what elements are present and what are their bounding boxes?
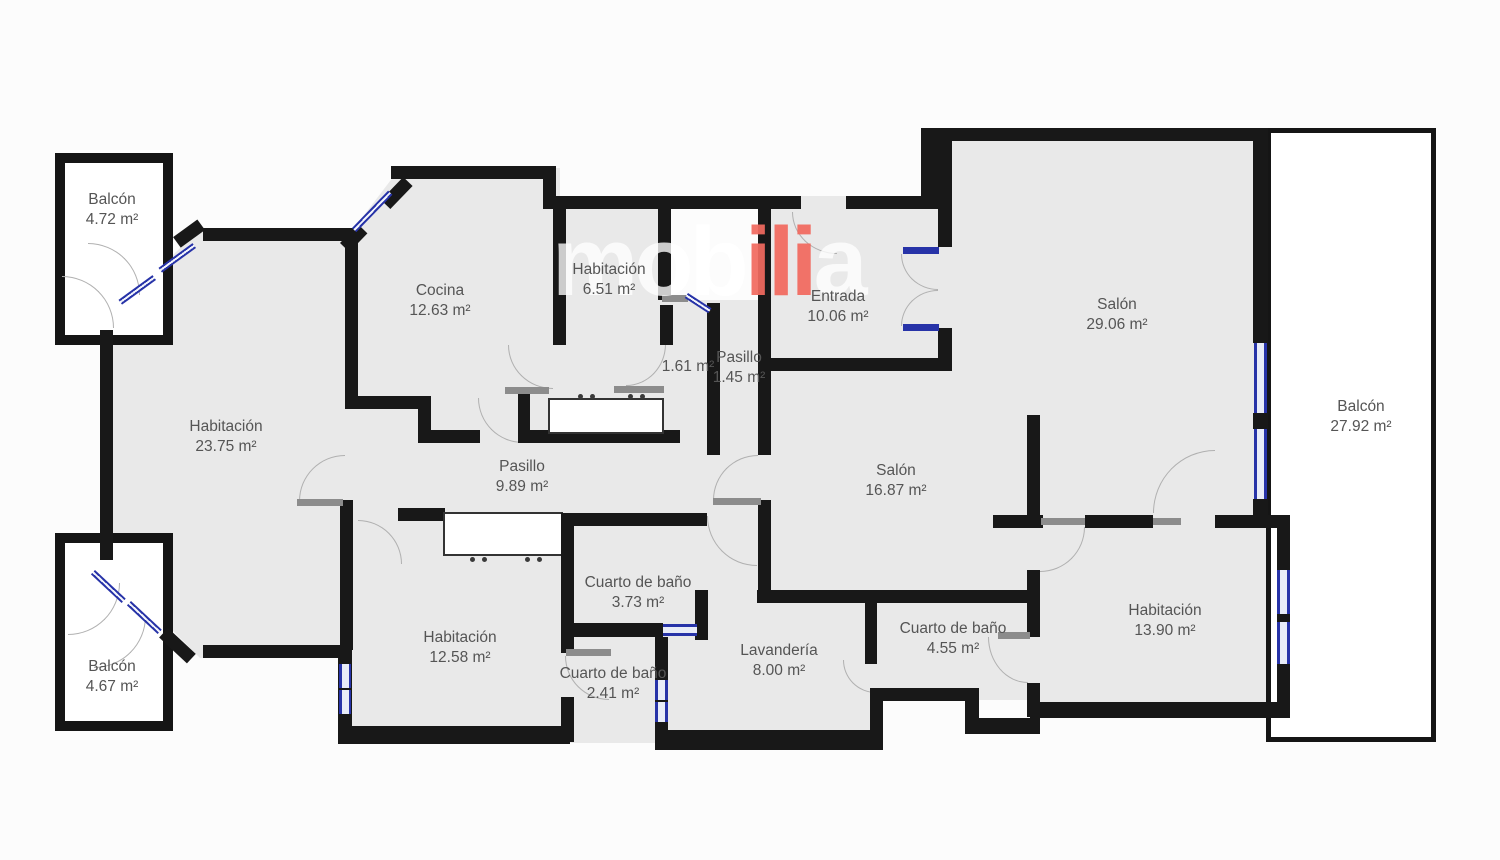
room-name: Habitación (1128, 601, 1201, 621)
wall-segment (340, 500, 353, 650)
room-name: Pasillo (713, 348, 766, 368)
closet-knob (628, 394, 633, 399)
wall-segment (431, 430, 480, 443)
room-area: 4.55 m² (900, 639, 1007, 659)
room-area: 27.92 m² (1330, 417, 1391, 437)
room-label-balcon-bottom-left: Balcón4.67 m² (86, 657, 139, 698)
doorway-lintel (614, 386, 664, 393)
room-area: 10.06 m² (807, 307, 868, 327)
room-label-pasillo-161: 1.61 m² (662, 357, 715, 377)
doorway-lintel (505, 387, 549, 394)
room-name: Cuarto de baño (560, 664, 667, 684)
room-label-bano-455: Cuarto de baño4.55 m² (900, 619, 1007, 660)
closet-cocina (548, 398, 664, 434)
room-name: Cuarto de baño (585, 573, 692, 593)
room-name: Lavandería (740, 641, 818, 661)
wall-segment (338, 726, 570, 744)
room-label-salon-1687: Salón16.87 m² (865, 461, 926, 502)
closet-knob (482, 557, 487, 562)
wall-segment (345, 228, 358, 409)
wall-segment (1027, 570, 1040, 637)
watermark-part-red: ili (745, 207, 814, 316)
wall-segment (655, 730, 883, 750)
room-area: 12.63 m² (409, 301, 470, 321)
room-area: 4.67 m² (86, 677, 139, 697)
room-name: Salón (865, 461, 926, 481)
doorway-lintel (1041, 518, 1085, 525)
wall-segment (938, 141, 952, 247)
wall-segment (758, 500, 771, 603)
closet-knob (525, 557, 530, 562)
window (1277, 570, 1290, 614)
wall-segment (1253, 413, 1268, 429)
room-area: 2.41 m² (560, 684, 667, 704)
window (663, 624, 697, 636)
room-label-lavanderia: Lavandería8.00 m² (740, 641, 818, 682)
wall-segment (561, 513, 707, 526)
closet-knob (640, 394, 645, 399)
room-area: 1.61 m² (662, 357, 715, 377)
room-name: Pasillo (496, 457, 549, 477)
wall-segment (418, 396, 431, 443)
window (1254, 343, 1267, 413)
wall-segment (1277, 614, 1290, 622)
room-area: 3.73 m² (585, 593, 692, 613)
room-area: 8.00 m² (740, 661, 818, 681)
wall-segment (100, 330, 113, 560)
window (1254, 429, 1267, 499)
room-label-entrada: Entrada10.06 m² (807, 287, 868, 328)
floor-plan: mobilia Balcón4.72 m² Cocina12.63 m² Hab… (0, 0, 1500, 860)
room-area: 1.45 m² (713, 368, 766, 388)
closet-habitacion-1258 (443, 512, 563, 556)
wall-segment (932, 128, 1268, 141)
window (655, 702, 668, 722)
doorway-lintel (297, 499, 343, 506)
room-name: Balcón (86, 190, 139, 210)
room-label-habitacion-1258: Habitación12.58 m² (423, 628, 496, 669)
room-name: Cocina (409, 281, 470, 301)
door-leaf (903, 247, 939, 254)
room-label-habitacion-651: Habitación6.51 m² (572, 260, 645, 301)
room-name: Habitación (423, 628, 496, 648)
room-name: Salón (1086, 295, 1147, 315)
wall-segment (965, 718, 1040, 734)
wall-segment (1277, 515, 1290, 570)
room-label-balcon-top-left: Balcón4.72 m² (86, 190, 139, 231)
wall-segment (757, 590, 1033, 603)
room-label-pasillo-145: Pasillo1.45 m² (713, 348, 766, 389)
room-area: 16.87 m² (865, 481, 926, 501)
room-name: Cuarto de baño (900, 619, 1007, 639)
wall-segment (877, 688, 977, 701)
closet-knob (590, 394, 595, 399)
doorway-lintel (1153, 518, 1181, 525)
wall-segment (203, 645, 351, 658)
room-name: Entrada (807, 287, 868, 307)
closet-knob (537, 557, 542, 562)
wall-segment (398, 508, 445, 521)
door-leaf (903, 324, 939, 331)
room-name: Balcón (86, 657, 139, 677)
wall-segment (203, 228, 351, 241)
room-name: Habitación (189, 417, 262, 437)
closet-knob (470, 557, 475, 562)
window (339, 690, 351, 714)
room-name: Habitación (572, 260, 645, 280)
wall-segment (993, 515, 1043, 528)
room-area: 29.06 m² (1086, 315, 1147, 335)
room-area: 9.89 m² (496, 477, 549, 497)
wall-segment (1027, 415, 1040, 528)
wall-segment (770, 358, 946, 371)
room-label-salon-2906: Salón29.06 m² (1086, 295, 1147, 336)
room-name: Balcón (1330, 397, 1391, 417)
room-area: 13.90 m² (1128, 621, 1201, 641)
room-label-bano-373: Cuarto de baño3.73 m² (585, 573, 692, 614)
wall-segment (391, 166, 555, 179)
wall-segment (1253, 128, 1268, 343)
doorway-lintel (566, 649, 611, 656)
room-label-pasillo-989: Pasillo9.89 m² (496, 457, 549, 498)
room-area: 4.72 m² (86, 210, 139, 230)
window (1277, 622, 1290, 664)
doorway-lintel (713, 498, 761, 505)
wall-segment (1030, 702, 1290, 718)
room-area: 23.75 m² (189, 437, 262, 457)
wall-segment (1085, 515, 1153, 528)
room-label-bano-241: Cuarto de baño2.41 m² (560, 664, 667, 705)
window (339, 664, 351, 688)
closet-knob (578, 394, 583, 399)
room-label-cocina: Cocina12.63 m² (409, 281, 470, 322)
room-label-balcon-right: Balcón27.92 m² (1330, 397, 1391, 438)
room-area: 6.51 m² (572, 280, 645, 300)
room-label-habitacion-1390: Habitación13.90 m² (1128, 601, 1201, 642)
room-area: 12.58 m² (423, 648, 496, 668)
wall-segment (561, 623, 663, 637)
wall-segment (865, 590, 877, 664)
room-label-habitacion-2375: Habitación23.75 m² (189, 417, 262, 458)
